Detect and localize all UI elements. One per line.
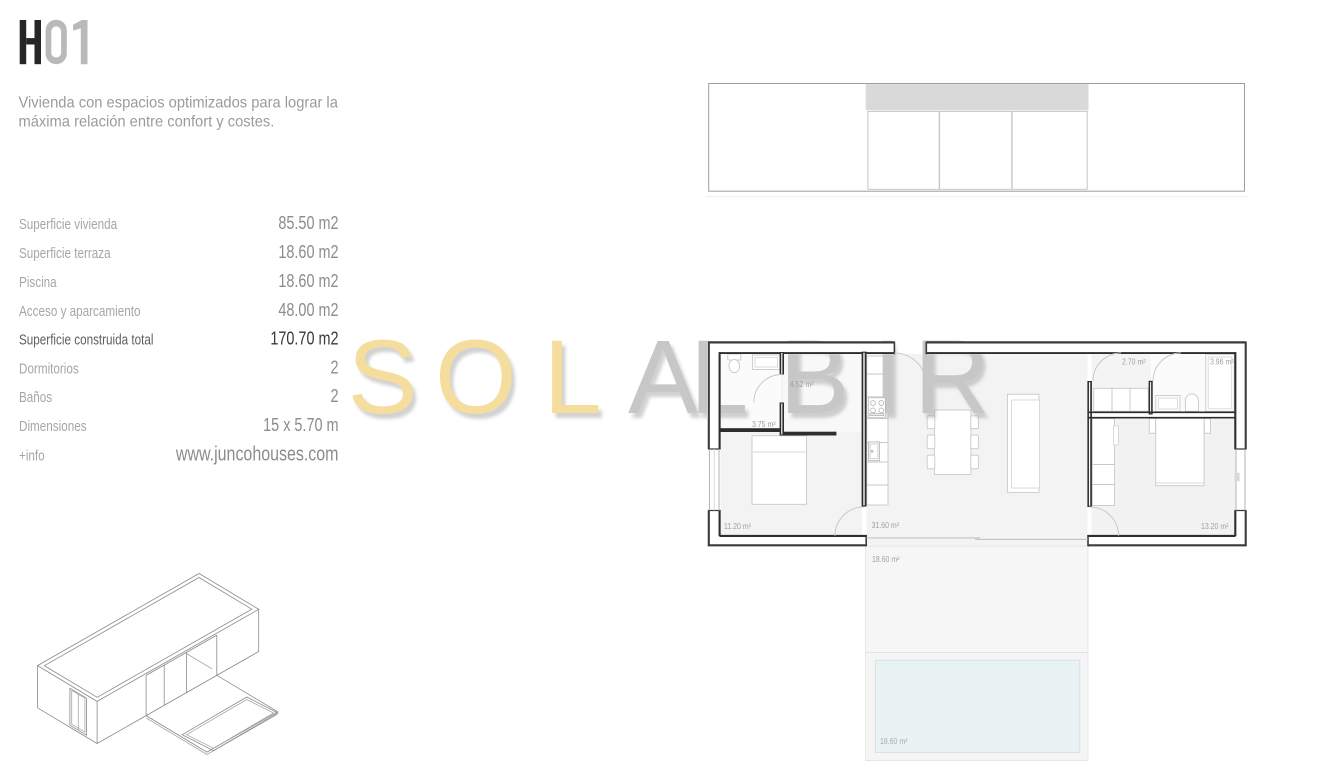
svg-text:85.50 m2: 85.50 m2 <box>278 212 338 233</box>
svg-text:I: I <box>873 319 902 436</box>
svg-text:170.70 m2: 170.70 m2 <box>270 328 338 349</box>
svg-text:+info: +info <box>19 447 45 464</box>
svg-text:L: L <box>544 319 602 436</box>
svg-text:S: S <box>348 319 418 436</box>
svg-text:Superficie terraza: Superficie terraza <box>19 245 111 262</box>
svg-text:18.60 m²: 18.60 m² <box>872 554 900 564</box>
svg-text:13.20 m²: 13.20 m² <box>1201 521 1229 531</box>
svg-text:Dimensiones: Dimensiones <box>19 417 87 434</box>
svg-text:O: O <box>435 319 517 436</box>
svg-text:18.60 m2: 18.60 m2 <box>278 241 338 262</box>
svg-text:11.20 m²: 11.20 m² <box>724 521 751 531</box>
svg-text:Dormitorios: Dormitorios <box>19 360 79 377</box>
svg-text:3.96 m²: 3.96 m² <box>1210 357 1234 367</box>
svg-text:Baños: Baños <box>19 389 52 406</box>
svg-text:31.60 m²: 31.60 m² <box>872 520 900 530</box>
svg-text:B: B <box>780 319 850 436</box>
svg-text:2.70 m²: 2.70 m² <box>1122 357 1146 367</box>
svg-text:15 x 5.70 m: 15 x 5.70 m <box>263 414 338 435</box>
svg-text:Piscina: Piscina <box>19 274 57 291</box>
svg-text:18.60 m2: 18.60 m2 <box>278 270 338 291</box>
svg-text:4.52 m²: 4.52 m² <box>790 379 814 389</box>
svg-text:Superficie construida total: Superficie construida total <box>19 331 153 348</box>
svg-text:Vivienda con espacios optimiza: Vivienda con espacios optimizados para l… <box>19 94 339 112</box>
svg-text:2: 2 <box>330 357 338 378</box>
svg-text:2: 2 <box>330 385 338 406</box>
svg-text:18.60 m²: 18.60 m² <box>880 736 908 746</box>
svg-text:www.juncohouses.com: www.juncohouses.com <box>175 442 338 465</box>
svg-text:48.00 m2: 48.00 m2 <box>278 299 338 320</box>
svg-text:Acceso y aparcamiento: Acceso y aparcamiento <box>19 302 140 319</box>
svg-text:máxima relación entre confort: máxima relación entre confort y costes. <box>19 113 275 131</box>
svg-text:A: A <box>628 319 698 436</box>
svg-text:Superficie vivienda: Superficie vivienda <box>19 216 118 233</box>
svg-text:3.75 m²: 3.75 m² <box>752 419 776 429</box>
